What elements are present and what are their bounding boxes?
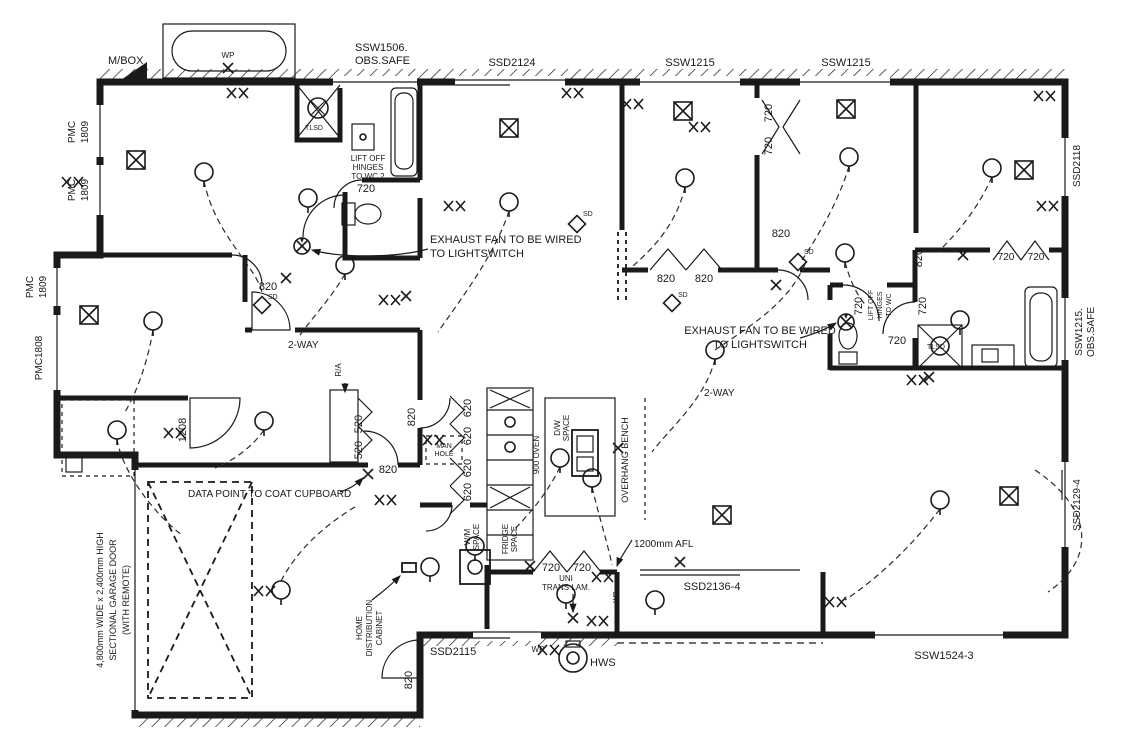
label-liftoff1-l3: TO WC 2	[351, 172, 385, 181]
label-820-1: 820	[259, 281, 277, 293]
double-gpo-symbol	[379, 295, 400, 305]
label-liftoff2-l1: LIFT OFF	[868, 290, 875, 320]
label-manhole-l1: MAN	[436, 443, 452, 450]
exhaust-fans	[294, 238, 854, 330]
label-dw-space: SPACE	[562, 415, 571, 442]
double-gpo-symbol	[622, 99, 643, 109]
label-home: HOME	[355, 616, 364, 640]
double-gpo-symbol	[227, 88, 248, 98]
label-wp-laundry: WP	[532, 645, 545, 654]
switch-symbol	[401, 291, 411, 301]
label-820-8: 820	[403, 671, 415, 689]
label-620-c: 620	[462, 459, 474, 477]
label-820-6: 820	[913, 249, 925, 267]
label-liftoff1-l1: LIFT OFF	[351, 154, 386, 163]
ceiling-light-symbol	[500, 193, 518, 217]
toilet-wc2	[342, 203, 381, 225]
label-ssw1215-right: SSW1215.	[1074, 308, 1085, 356]
label-exhaust-note1-l2: TO LIGHTSWITCH	[430, 248, 524, 260]
label-ssd2115: SSD2115	[430, 646, 476, 658]
basin-main-bath	[352, 124, 374, 150]
vanity-ensuite	[972, 345, 1014, 367]
label-pmc-1-size: 1809	[80, 120, 91, 143]
label-liftoff2-l3: TO WC	[886, 293, 893, 316]
label-720-g: 720	[573, 562, 591, 574]
label-ssw1215-b: SSW1215	[821, 57, 871, 69]
ceiling-light-symbol	[676, 169, 694, 193]
tv-point-symbol	[127, 151, 145, 169]
label-pmc-1: PMC	[67, 121, 78, 143]
switch-symbol	[281, 273, 291, 283]
label-sd-1: SD	[583, 211, 593, 218]
label-distribution: DISTRIBUTION	[365, 600, 374, 657]
ceiling-light-symbol	[840, 148, 858, 172]
label-ssd2136-4: SSD2136-4	[684, 581, 741, 593]
ceiling-light-symbol	[421, 558, 439, 582]
label-uni: UNI	[559, 574, 573, 583]
label-520-a: 520	[353, 415, 365, 433]
coat-cupboard	[330, 390, 372, 462]
label-820-7: 820	[406, 408, 418, 426]
label-ssd2124: SSD2124	[488, 57, 535, 69]
switch-symbol	[363, 469, 373, 479]
tv-point-symbol	[837, 100, 855, 118]
label-720-d: 720	[998, 252, 1015, 263]
label-620-a: 620	[462, 399, 474, 417]
entry-porch	[62, 400, 134, 476]
label-mailbox: M/BOX	[108, 55, 144, 67]
tv-point-symbol	[713, 506, 731, 524]
home-distribution-cabinet-box	[402, 563, 416, 572]
label-pmc-3: PMC	[25, 276, 36, 298]
label-fridge: FRIDGE	[501, 524, 510, 554]
tv-point-symbol	[674, 102, 692, 120]
ceiling-light-symbol	[583, 469, 601, 493]
double-gpo-symbol	[825, 597, 846, 607]
smoke-detector-symbol	[569, 216, 586, 233]
label-2way-1: 2-WAY	[288, 340, 319, 351]
exhaust-fan-symbol	[294, 238, 310, 254]
label-tlsd-2: TLSD	[927, 344, 945, 351]
label-manhole-l2: HOLE	[434, 451, 453, 458]
label-tlsd-1: TLSD	[305, 125, 323, 132]
label-garage-door-l1: 4,800mm WIDE x 2,400mm HIGH	[95, 532, 105, 668]
exhaust-fan-symbol	[838, 314, 854, 330]
ceiling-light-symbol	[983, 159, 1001, 183]
tv-point-symbol	[500, 119, 518, 137]
island-bench	[545, 398, 645, 520]
tv-point-symbol	[1015, 161, 1033, 179]
label-620-d: 620	[462, 483, 474, 501]
electrical-floor-plan-drawing: M/BOX WP SSW1506. OBS.SAFE SSD2124 SSW12…	[0, 0, 1141, 750]
double-gpo-symbol	[907, 375, 928, 385]
ceiling-light-symbol	[255, 412, 273, 436]
floor-plan-page: M/BOX WP SSW1506. OBS.SAFE SSD2124 SSW12…	[0, 0, 1141, 750]
label-720-wc1: 720	[357, 183, 375, 195]
double-gpo-symbol	[1037, 201, 1058, 211]
label-820-2: 820	[657, 273, 675, 285]
label-ssd2129-4: SSD2129-4	[1072, 479, 1083, 531]
label-sd-2: SD	[804, 249, 814, 256]
label-720-h: 720	[763, 104, 775, 122]
label-wp-tank: WP	[222, 51, 235, 60]
ceiling-light-symbol	[646, 591, 664, 615]
label-sd-3: SD	[678, 292, 688, 299]
double-gpo-symbol	[689, 122, 710, 132]
tv-point-symbol	[1000, 487, 1018, 505]
label-sd-4: SD	[268, 294, 278, 301]
label-520-b: 520	[353, 441, 365, 459]
label-hws: HWS	[590, 657, 616, 669]
label-ssd2118: SSD2118	[1072, 145, 1083, 188]
label-exhaust-note2-l1: EXHAUST FAN TO BE WIRED	[684, 325, 836, 337]
ceiling-light-symbol	[951, 311, 969, 335]
label-cabinet: CABINET	[375, 611, 384, 646]
label-720-i: 720	[763, 137, 775, 155]
label-garage-door-l2: SECTIONAL GARAGE DOOR	[108, 539, 118, 661]
label-trans-lam: TRANS LAM.	[542, 583, 590, 592]
label-obs-safe-top: OBS.SAFE	[355, 55, 410, 67]
label-2way-2: 2-WAY	[704, 388, 735, 399]
label-exhaust-note2-l2: TO LIGHTSWITCH	[713, 339, 807, 351]
ceiling-light-symbol	[272, 581, 290, 605]
label-1200mm-afl: 1200mm AFL	[634, 539, 694, 550]
bath-ensuite	[1025, 287, 1057, 367]
switch-symbol	[675, 557, 685, 567]
label-data-point: DATA POINT TO COAT CUPBOARD	[188, 489, 351, 500]
label-ssw1506: SSW1506.	[355, 42, 408, 54]
ceiling-light-symbol	[299, 189, 317, 213]
ceiling-lights	[108, 148, 1001, 615]
ceiling-light-symbol	[195, 163, 213, 187]
label-620-b: 620	[462, 427, 474, 445]
double-gpo-symbol	[375, 495, 396, 505]
label-wm-space: SPACE	[472, 524, 481, 551]
label-pmc1808: PMC1808	[34, 335, 45, 380]
label-obs-safe-right: OBS.SAFE	[1086, 307, 1097, 357]
switch-symbol	[568, 613, 578, 623]
double-gpo-symbol	[562, 88, 583, 98]
bath-main	[391, 88, 417, 176]
hall-double-doors	[650, 249, 722, 270]
label-900-oven: 900 OVEN	[532, 436, 541, 474]
label-720-b: 720	[917, 297, 929, 315]
label-garage-door-l3: (WITH REMOTE)	[121, 565, 131, 635]
ceiling-light-symbol	[108, 421, 126, 445]
man-hole-box	[426, 436, 462, 464]
label-wm: W/M	[463, 528, 472, 545]
ceiling-light-symbol	[144, 312, 162, 336]
switch-symbol	[771, 280, 781, 290]
label-wp-alfresco: WP	[613, 591, 620, 603]
label-720-a: 720	[853, 297, 865, 315]
label-820-5: 820	[379, 464, 397, 476]
label-liftoff1-l2: HINGES	[353, 163, 384, 172]
label-overhang-bench: OVERHANG BENCH	[620, 417, 630, 503]
label-720-e: 720	[1028, 252, 1045, 263]
wiring-runs	[117, 166, 1082, 600]
label-820-4: 820	[772, 228, 790, 240]
label-ssw1524-3: SSW1524-3	[914, 650, 973, 662]
ceiling-light-symbol	[931, 491, 949, 515]
label-fridge-space: SPACE	[510, 526, 519, 553]
label-720-c: 720	[888, 335, 906, 347]
ceiling-light-symbol	[836, 244, 854, 268]
label-ra: R/A	[334, 363, 343, 377]
double-gpo-symbol	[1034, 91, 1055, 101]
double-gpo-symbol	[587, 616, 608, 626]
interior-walls	[57, 82, 1065, 643]
label-pmc-3-size: 1809	[38, 275, 49, 298]
label-pmc-2-size: 1809	[80, 178, 91, 201]
label-liftoff2-l2: HINGES	[877, 291, 884, 318]
label-exhaust-note1-l1: EXHAUST FAN TO BE WIRED	[430, 234, 582, 246]
label-1208: 1208	[177, 418, 189, 442]
label-pmc-2: PMC	[67, 179, 78, 201]
label-720-f: 720	[542, 562, 560, 574]
double-gpo-symbol	[444, 201, 465, 211]
tv-point-symbol	[80, 306, 98, 324]
ceiling-light-symbol	[551, 449, 569, 473]
label-dw: D/W	[553, 420, 562, 436]
label-ssw1215-a: SSW1215	[665, 57, 715, 69]
garage-door-extent	[148, 482, 252, 698]
label-820-3: 820	[695, 273, 713, 285]
